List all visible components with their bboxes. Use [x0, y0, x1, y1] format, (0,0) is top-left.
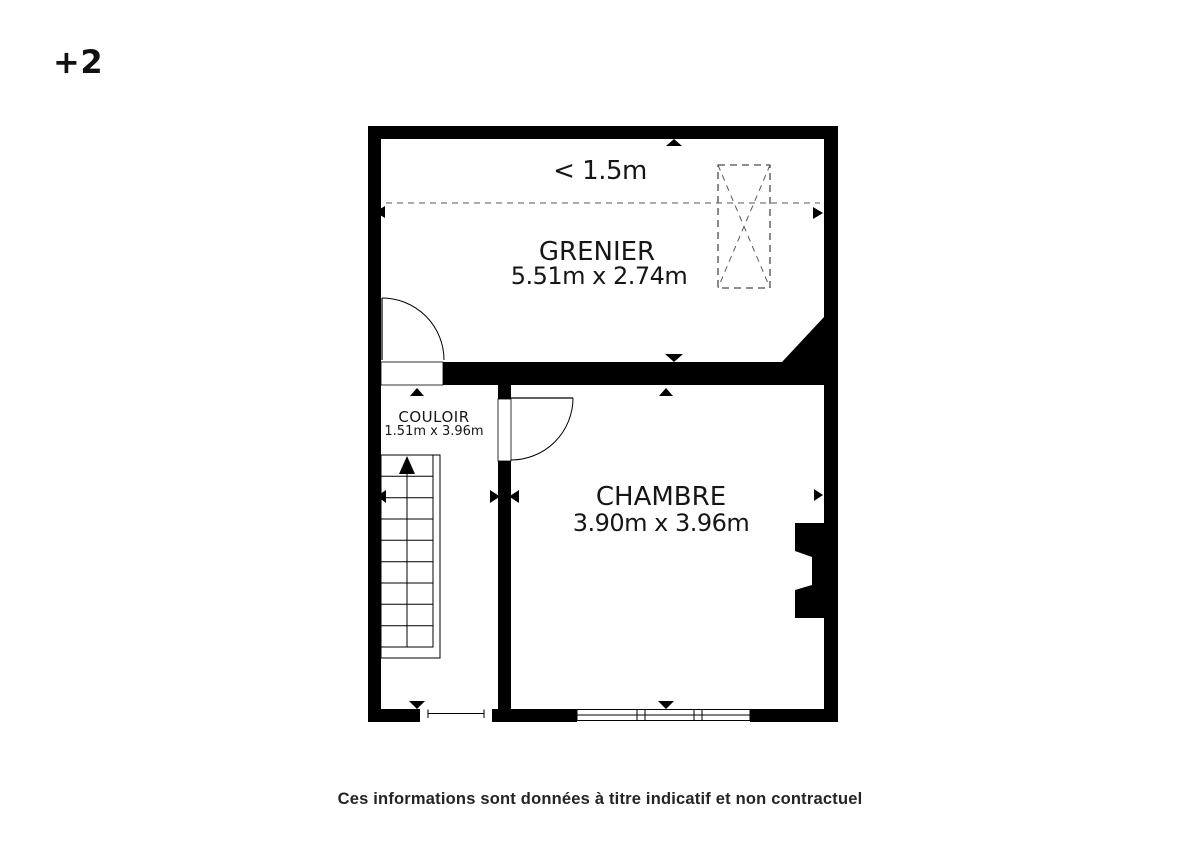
wall-grenier-bottom [443, 362, 838, 385]
grenier-door-opening [381, 362, 443, 385]
staircase-outline [381, 455, 440, 658]
wall-bottom-right-segment [750, 709, 838, 722]
wall-bottom-middle-segment [492, 709, 577, 722]
chambre-window [577, 710, 750, 721]
floor-plan-drawing [0, 0, 1200, 849]
marker-chambre-top-icon [659, 388, 673, 396]
marker-right-wall-icon [814, 489, 823, 501]
wall-divider [498, 461, 511, 709]
room-name-chambre: CHAMBRE [596, 484, 726, 510]
wall-right [824, 126, 838, 722]
height-annotation: < 1.5m [553, 158, 647, 184]
wall-bottom-left-segment [368, 709, 420, 722]
wall-top [368, 126, 838, 139]
marker-couloir-top-icon [410, 388, 424, 396]
floor-label: +2 [53, 46, 103, 78]
chimney-notch [795, 551, 812, 590]
room-name-couloir: COULOIR [398, 410, 469, 425]
roof-window-icon [718, 165, 770, 288]
couloir-window [428, 710, 484, 719]
grenier-door [381, 298, 444, 385]
room-dims-couloir: 1.51m x 3.96m [384, 425, 483, 438]
chambre-door-opening [498, 399, 511, 461]
wall-left [368, 126, 381, 722]
room-dims-chambre: 3.90m x 3.96m [573, 511, 750, 535]
disclaimer-text: Ces informations sont données à titre in… [338, 791, 863, 808]
room-dims-grenier: 5.51m x 2.74m [511, 264, 688, 288]
chambre-door [498, 398, 573, 461]
chambre-door-swing-arc [511, 398, 573, 460]
staircase [381, 455, 440, 658]
wall-divider-stub [498, 385, 511, 399]
wall-chamfer [782, 317, 824, 362]
marker-bottom-chambre-icon [658, 701, 674, 709]
chimney [795, 523, 824, 618]
floor-plan-page: +2 < 1.5m GRENIER 5.51m x 2.74m COULOIR … [0, 0, 1200, 849]
height-limit-line [375, 203, 823, 219]
staircase-up-arrow-icon [399, 456, 415, 474]
marker-grenier-bottom-icon [665, 354, 683, 362]
marker-top-wall-icon [666, 139, 682, 146]
marker-bottom-couloir-icon [409, 701, 425, 709]
arrow-right-icon [813, 207, 823, 219]
grenier-door-swing-arc [382, 298, 444, 360]
